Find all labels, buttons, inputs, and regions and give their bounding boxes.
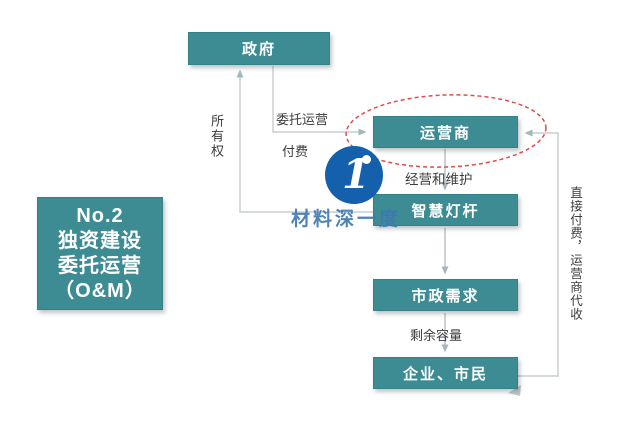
watermark-logo-icon: 1	[325, 146, 383, 204]
watermark-brand-text: 材料深一度	[291, 204, 401, 231]
logo-degree-dot	[362, 155, 371, 164]
diagram-canvas: No.2 独资建设 委托运营 （O&M） 政府 运营商 智慧灯杆 市政需求 企业…	[0, 0, 640, 425]
